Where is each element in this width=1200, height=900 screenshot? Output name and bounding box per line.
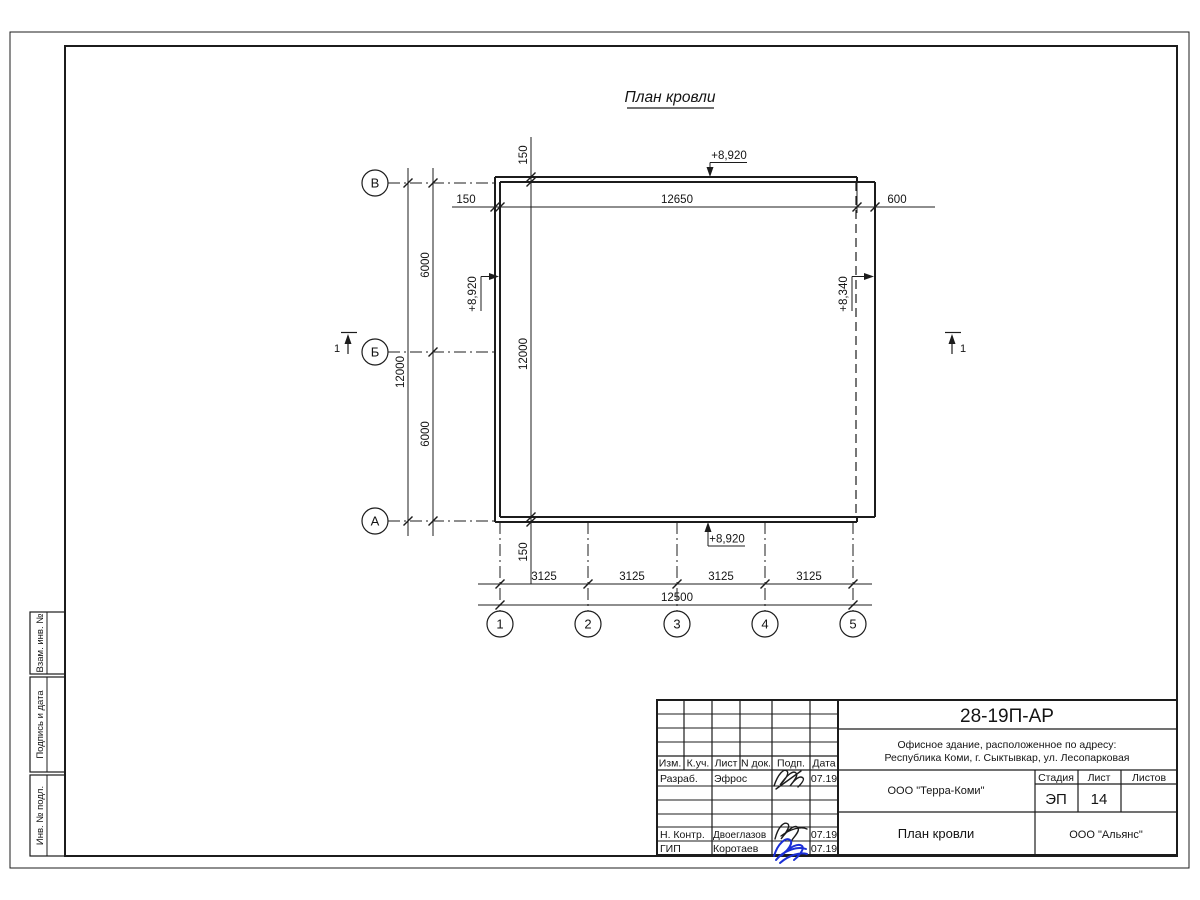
- dim-text: 3125: [619, 571, 645, 583]
- client-org: ООО "Альянс": [1069, 829, 1143, 841]
- dim-text: 12650: [661, 194, 693, 206]
- elevation-mark-top: +8,920: [707, 150, 748, 177]
- stage-label: Стадия: [1038, 772, 1074, 784]
- sheets-label: Листов: [1132, 772, 1167, 784]
- tb-role: Н. Контр.: [660, 829, 705, 841]
- dim-text: 600: [887, 194, 906, 206]
- dim-text: 150: [518, 542, 530, 561]
- roof-plan-drawing: Взам. инв. № Подпись и дата Инв. № подл.…: [0, 0, 1200, 900]
- drawing-title: План кровли: [625, 89, 716, 106]
- tb-date: 07.19: [811, 829, 837, 841]
- axis-label-3: 3: [673, 617, 680, 632]
- tb-header-list: Лист: [715, 758, 738, 770]
- designer-org: ООО "Терра-Коми": [887, 785, 984, 797]
- stamp-label-vzam: Взам. инв. №: [35, 614, 46, 673]
- axis-label-A: А: [371, 514, 380, 529]
- drawing-title-group: План кровли: [625, 89, 716, 108]
- object-description-line2: Республика Коми, г. Сыктывкар, ул. Лесоп…: [885, 752, 1130, 764]
- inner-frame: [65, 46, 1177, 856]
- section-label: 1: [334, 343, 340, 355]
- tb-date: 07.19: [811, 773, 837, 785]
- dimensions: 150 12650 600 12000 6000 6000 150 12000 …: [395, 137, 935, 610]
- tb-role: Разраб.: [660, 773, 698, 785]
- axis-label-5: 5: [849, 617, 856, 632]
- sheet-value: 14: [1091, 791, 1108, 808]
- tb-name: Коротаев: [713, 843, 759, 855]
- dim-text: 3125: [796, 571, 822, 583]
- elevation-arrow-icon: [864, 273, 874, 280]
- tb-header-data: Дата: [812, 758, 835, 770]
- dim-text: 6000: [420, 252, 432, 278]
- signature-nkontr: [775, 823, 807, 840]
- sheet-label: Лист: [1088, 772, 1111, 784]
- section-mark-left: 1: [334, 333, 357, 356]
- section-arrow-icon: [345, 334, 352, 344]
- doc-number: 28-19П-АР: [960, 706, 1054, 727]
- stage-value: ЭП: [1045, 791, 1067, 808]
- dim-text: 12500: [661, 592, 693, 604]
- section-arrow-icon: [949, 334, 956, 344]
- drawing-sheet: Взам. инв. № Подпись и дата Инв. № подл.…: [0, 0, 1200, 900]
- tb-header-kuch: К.уч.: [687, 758, 710, 770]
- dim-text: 150: [518, 145, 530, 164]
- dim-text: 150: [456, 194, 475, 206]
- roof-outline: [495, 177, 875, 522]
- axis-label-B: Б: [371, 345, 380, 360]
- section-label: 1: [960, 343, 966, 355]
- elevation-mark-right: +8,340: [838, 273, 874, 312]
- elevation-text: +8,920: [467, 276, 479, 312]
- tb-date: 07.19: [811, 843, 837, 855]
- section-marks: 1 1: [334, 333, 966, 356]
- dim-text: 12000: [518, 338, 530, 370]
- object-description-line1: Офисное здание, расположенное по адресу:: [898, 739, 1117, 751]
- sheet-title: План кровли: [898, 826, 975, 841]
- elevation-mark-bottom: +8,920: [705, 522, 746, 546]
- axis-label-1: 1: [496, 617, 503, 632]
- tb-name: Эфрос: [714, 773, 747, 785]
- tb-header-ndok: N док.: [741, 758, 771, 770]
- elevation-text: +8,920: [711, 150, 747, 162]
- tb-name: Двоеглазов: [713, 830, 766, 841]
- elevation-arrow-icon: [707, 167, 714, 177]
- title-block: 28-19П-АР Офисное здание, расположенное …: [657, 700, 1177, 863]
- side-stamp: Взам. инв. № Подпись и дата Инв. № подл.: [30, 612, 65, 856]
- signature-gip: [774, 839, 807, 863]
- axis-label-4: 4: [761, 617, 768, 632]
- elevation-text: +8,920: [709, 534, 745, 546]
- axis-grid: В Б А 1 2 3 4 5: [362, 170, 866, 637]
- tb-header-izm: Изм.: [659, 758, 682, 770]
- axis-label-2: 2: [584, 617, 591, 632]
- section-mark-right: 1: [945, 333, 966, 356]
- stamp-label-podpis: Подпись и дата: [35, 690, 46, 759]
- dim-text: 3125: [708, 571, 734, 583]
- dim-text: 3125: [531, 571, 557, 583]
- tb-role: ГИП: [660, 843, 681, 855]
- elevation-text: +8,340: [838, 276, 850, 312]
- elevation-arrow-icon: [705, 522, 712, 532]
- dim-text: 6000: [420, 421, 432, 447]
- stamp-label-inv: Инв. № подл.: [35, 786, 46, 845]
- axis-label-V: В: [371, 176, 380, 191]
- tb-header-podp: Подп.: [777, 758, 805, 770]
- dim-text: 12000: [395, 356, 407, 388]
